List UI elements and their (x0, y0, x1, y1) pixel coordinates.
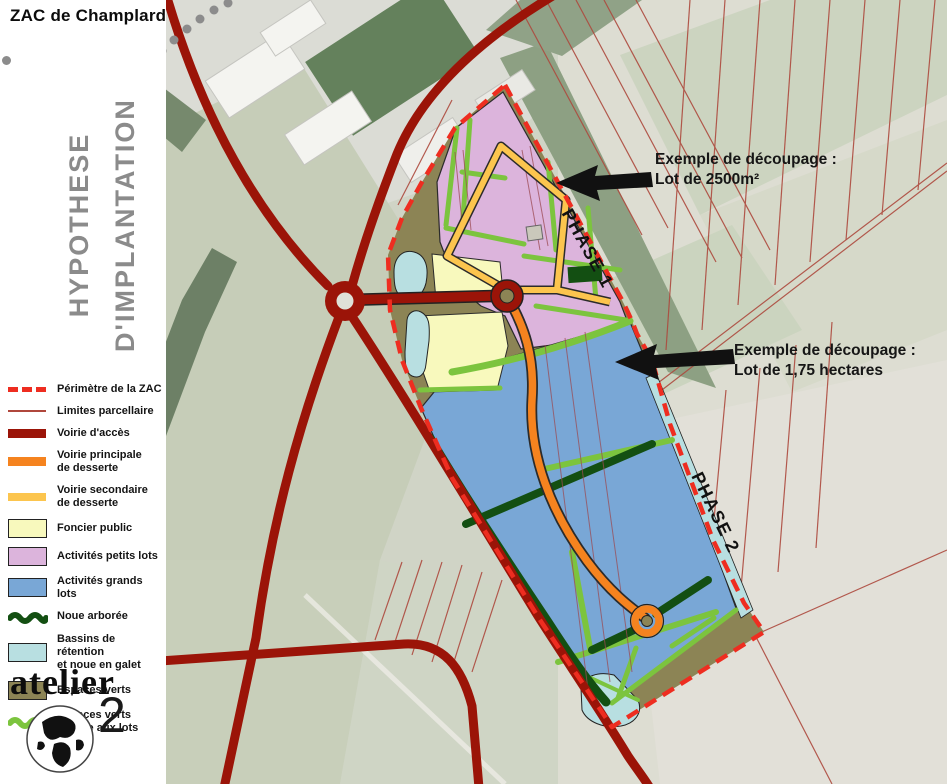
annotation-line: Exemple de découpage : (734, 341, 916, 361)
main-roundabout (325, 281, 365, 321)
legend-label: Activités petits lots (57, 550, 158, 563)
annotation-lot-175ha: Exemple de découpage : Lot de 1,75 hecta… (734, 341, 916, 382)
legend-item-petits-lots: Activités petits lots (8, 547, 164, 566)
logo-wordmark: atelier (10, 664, 164, 700)
large-lots-swatch (8, 578, 48, 597)
tree-swale-swatch (8, 610, 48, 624)
annotation-line: Lot de 1,75 hectares (734, 361, 916, 381)
legend-item-perimetre: Périmètre de la ZAC (8, 383, 164, 396)
parcel-line-swatch (8, 410, 48, 412)
legend-label: Voirie principale de desserte (57, 449, 142, 475)
sidebar: ZAC de Champlard HYPOTHESE D'IMPLANTATIO… (0, 0, 166, 784)
logo-number: 2 (98, 690, 126, 740)
existing-building (526, 225, 543, 241)
legend-item-voirie-secondaire: Voirie secondaire de desserte (8, 484, 164, 510)
legend-item-voirie-acces: Voirie d'accès (8, 427, 164, 440)
globe-icon (24, 702, 96, 774)
atelier2-logo: atelier 2 (6, 664, 164, 782)
dark-wave-icon (8, 610, 48, 624)
map-screenshot: Exemple de découpage : Lot de 2500m² Exe… (0, 0, 947, 784)
legend-label: Voirie d'accès (57, 427, 130, 440)
legend-label: Activités grands lots (57, 575, 164, 601)
legend-label: Voirie secondaire de desserte (57, 484, 148, 510)
access-road-swatch (8, 429, 48, 438)
main-road-swatch (8, 457, 48, 466)
legend-item-grands-lots: Activités grands lots (8, 575, 164, 601)
foncier-public-lower (416, 312, 508, 392)
legend-item-noue-arboree: Noue arborée (8, 610, 164, 624)
legend-item-limites: Limites parcellaire (8, 405, 164, 418)
perimeter-swatch (8, 387, 48, 392)
legend-label: Noue arborée (57, 610, 128, 623)
legend-label: Foncier public (57, 522, 132, 535)
public-land-swatch (8, 519, 48, 538)
page-title: ZAC de Champlard (10, 6, 166, 26)
site-roundabout (491, 280, 523, 312)
dotted-line-dot (2, 56, 11, 65)
orange-roundabout (631, 605, 664, 638)
legend-item-voirie-principale: Voirie principale de desserte (8, 449, 164, 475)
annotation-lot-2500: Exemple de découpage : Lot de 2500m² (655, 150, 837, 191)
vertical-heading: HYPOTHESE D'IMPLANTATION (56, 60, 148, 390)
heading-line-1: HYPOTHESE (56, 60, 102, 390)
heading-line-2: D'IMPLANTATION (102, 60, 148, 390)
legend-label: Limites parcellaire (57, 405, 154, 418)
secondary-road-swatch (8, 493, 48, 501)
annotation-line: Exemple de découpage : (655, 150, 837, 170)
legend-item-foncier-public: Foncier public (8, 519, 164, 538)
legend-label: Périmètre de la ZAC (57, 383, 162, 396)
retention-basin-swatch (8, 643, 48, 662)
annotation-line: Lot de 2500m² (655, 170, 837, 190)
small-lots-swatch (8, 547, 48, 566)
